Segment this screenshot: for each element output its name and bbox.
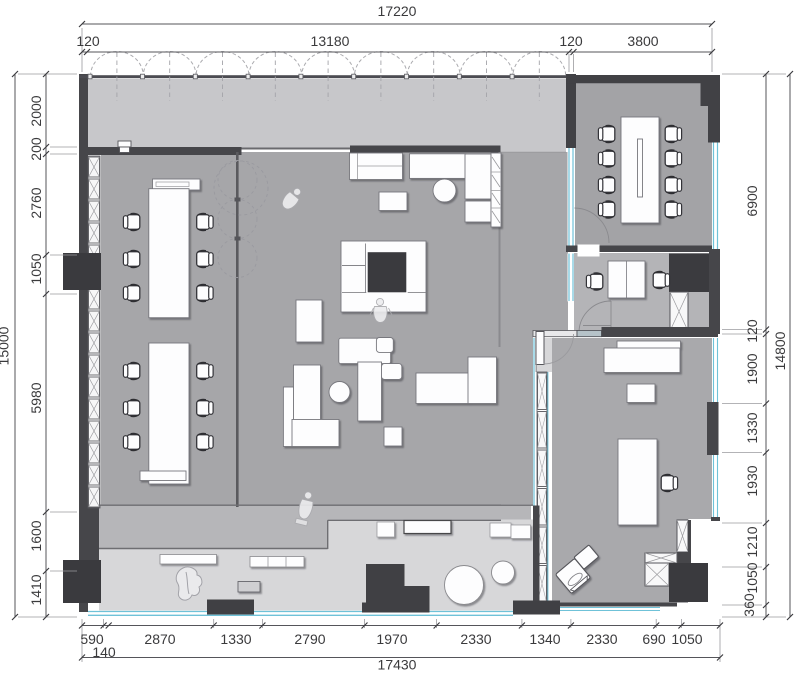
svg-text:1600: 1600 — [28, 520, 44, 551]
svg-text:2870: 2870 — [144, 631, 175, 647]
svg-text:5980: 5980 — [28, 382, 44, 413]
svg-text:2760: 2760 — [28, 187, 44, 218]
svg-text:15000: 15000 — [0, 326, 12, 365]
svg-text:2790: 2790 — [294, 631, 325, 647]
svg-text:1330: 1330 — [744, 412, 760, 443]
svg-text:17430: 17430 — [378, 657, 417, 673]
svg-text:120: 120 — [559, 33, 583, 49]
svg-text:360: 360 — [741, 593, 757, 617]
svg-text:1050: 1050 — [28, 253, 44, 284]
svg-text:1330: 1330 — [220, 631, 251, 647]
svg-text:1900: 1900 — [744, 353, 760, 384]
svg-text:1210: 1210 — [744, 526, 760, 557]
svg-text:14800: 14800 — [772, 331, 788, 370]
svg-text:6900: 6900 — [744, 185, 760, 216]
svg-text:1050: 1050 — [744, 562, 760, 593]
svg-text:690: 690 — [642, 631, 666, 647]
svg-text:2000: 2000 — [28, 95, 44, 126]
svg-text:1410: 1410 — [28, 574, 44, 605]
svg-text:3800: 3800 — [627, 33, 658, 49]
svg-text:1050: 1050 — [671, 631, 702, 647]
svg-text:17220: 17220 — [378, 3, 417, 19]
svg-text:200: 200 — [28, 137, 44, 161]
svg-text:2330: 2330 — [460, 631, 491, 647]
svg-text:2330: 2330 — [586, 631, 617, 647]
svg-text:1970: 1970 — [376, 631, 407, 647]
svg-text:1930: 1930 — [744, 465, 760, 496]
svg-text:1340: 1340 — [529, 631, 560, 647]
svg-text:120: 120 — [744, 319, 760, 343]
svg-text:13180: 13180 — [311, 33, 350, 49]
svg-text:120: 120 — [76, 33, 100, 49]
svg-text:140: 140 — [92, 644, 116, 660]
